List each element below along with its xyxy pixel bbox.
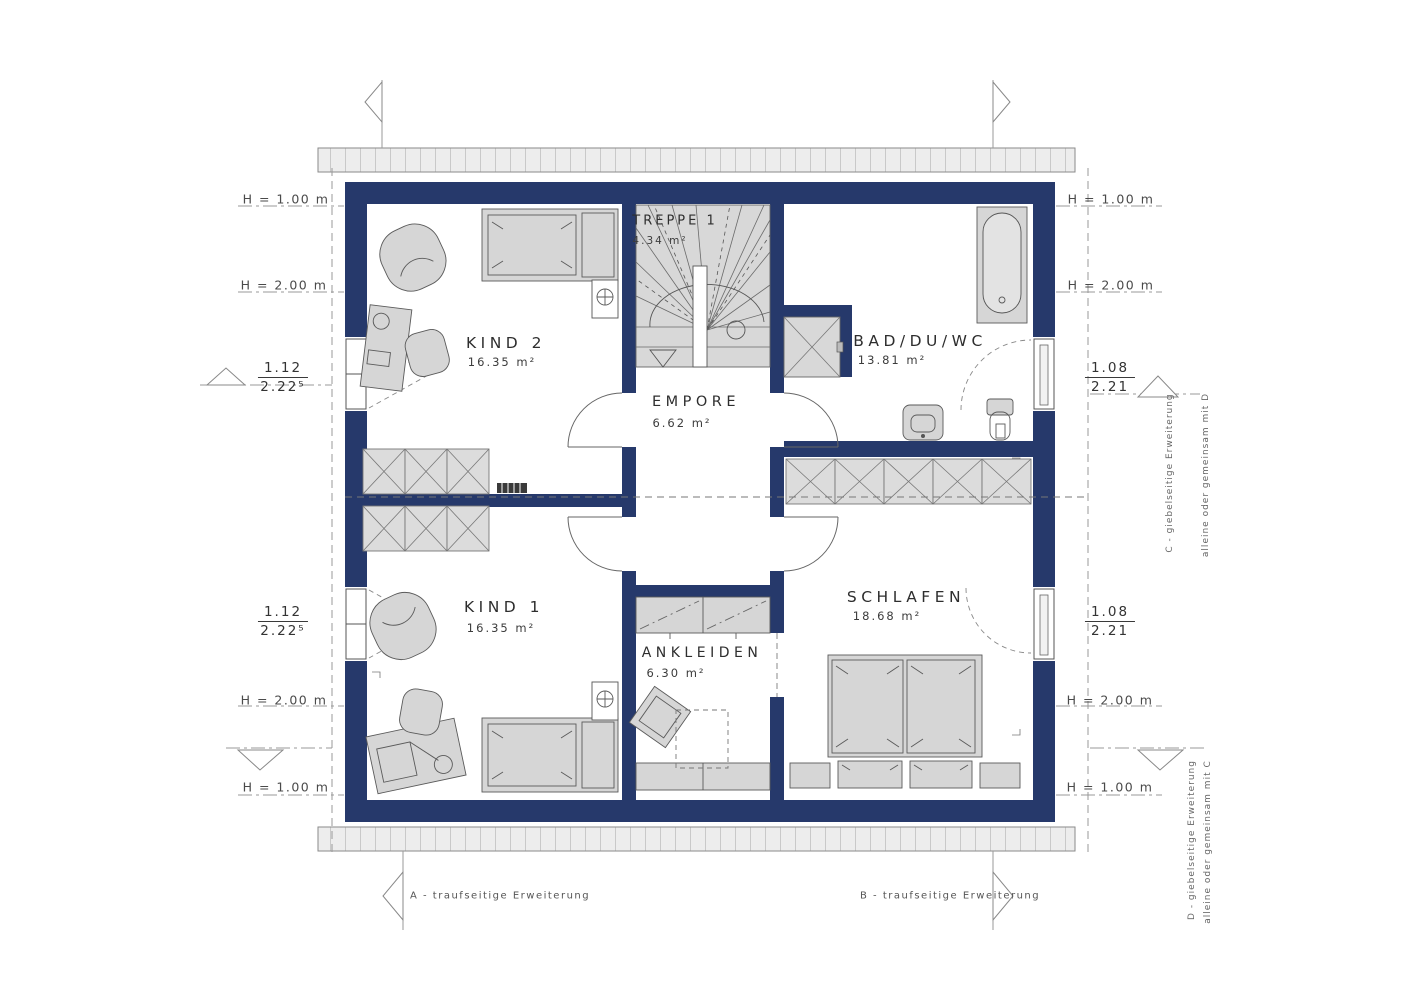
dim-left-h1-bottom: H = 1.00 m <box>243 780 330 795</box>
eaves-strip-bottom <box>318 827 1075 851</box>
furniture-bad <box>784 207 1027 440</box>
dim-left-h1-top: H = 1.00 m <box>243 192 330 207</box>
room-label-empore: EMPORE <box>652 394 740 410</box>
dim-right-h1-bottom: H = 1.00 m <box>1067 780 1154 795</box>
room-area-ankleiden: 6.30 m² <box>646 666 705 680</box>
room-area-treppe: 4.34 m² <box>632 235 687 247</box>
furniture-schlafen <box>790 655 1020 788</box>
room-label-schlafen: SCHLAFEN <box>847 588 965 606</box>
floor-plan-canvas: KIND 2 16.35 m² TREPPE 1 4.34 m² EMPORE … <box>0 0 1414 1000</box>
triangle-left-up-icon <box>207 368 245 385</box>
dim-left-h2-bottom: H = 2.00 m <box>241 693 328 708</box>
stool <box>629 686 690 747</box>
room-label-treppe: TREPPE 1 <box>632 214 717 229</box>
dim-right-h2-bottom: H = 2.00 m <box>1067 693 1154 708</box>
staircase-graphic <box>636 205 770 367</box>
annotation-c-line2: alleine oder gemeinsam mit D <box>1201 393 1211 557</box>
room-area-kind1: 16.35 m² <box>467 621 535 635</box>
annotation-d-line1: D - giebelseitige Erweiterung <box>1187 760 1197 920</box>
chair-kind1 <box>397 687 444 737</box>
dim-right-window-bottom: 1.08 2.21 <box>1085 604 1135 639</box>
arrow-top-right-icon <box>993 82 1010 122</box>
room-label-kind2: KIND 2 <box>466 334 546 352</box>
desk-kind2 <box>360 305 412 392</box>
dim-left-window-top: 1.12 2.22⁵ <box>258 360 308 395</box>
armchair-kind2 <box>371 215 454 299</box>
chair-kind2 <box>402 327 452 380</box>
triangle-right-down-icon <box>1138 750 1183 770</box>
room-label-kind1: KIND 1 <box>464 598 544 616</box>
annotation-b: B - traufseitige Erweiterung <box>860 891 1040 902</box>
room-area-schlafen: 18.68 m² <box>853 609 921 623</box>
dim-right-h2-top: H = 2.00 m <box>1068 278 1155 293</box>
toilet <box>987 399 1013 440</box>
eaves-strip-top <box>318 148 1075 172</box>
furniture-ankleiden <box>629 597 770 790</box>
triangle-left-down-icon <box>238 750 283 770</box>
sink <box>903 405 943 440</box>
room-area-empore: 6.62 m² <box>652 416 711 430</box>
dim-left-window-bottom: 1.12 2.22⁵ <box>258 604 308 639</box>
room-area-bad: 13.81 m² <box>858 353 926 367</box>
annotation-c-line1: C - giebelseitige Erweiterung <box>1165 393 1175 552</box>
room-label-bad: BAD/DU/WC <box>853 332 987 350</box>
room-area-kind2: 16.35 m² <box>468 355 536 369</box>
annotation-d-line2: alleine oder gemeinsam mit C <box>1203 760 1213 924</box>
annotation-a: A - traufseitige Erweiterung <box>410 891 590 902</box>
arrow-a-icon <box>383 872 403 920</box>
radiator <box>497 483 527 493</box>
dim-left-h2-top: H = 2.00 m <box>241 278 328 293</box>
room-label-ankleiden: ANKLEIDEN <box>642 645 763 661</box>
dim-right-window-top: 1.08 2.21 <box>1085 360 1135 395</box>
armchair-kind1 <box>361 584 444 668</box>
dim-right-h1-top: H = 1.00 m <box>1068 192 1155 207</box>
arrow-top-left-icon <box>365 82 382 122</box>
